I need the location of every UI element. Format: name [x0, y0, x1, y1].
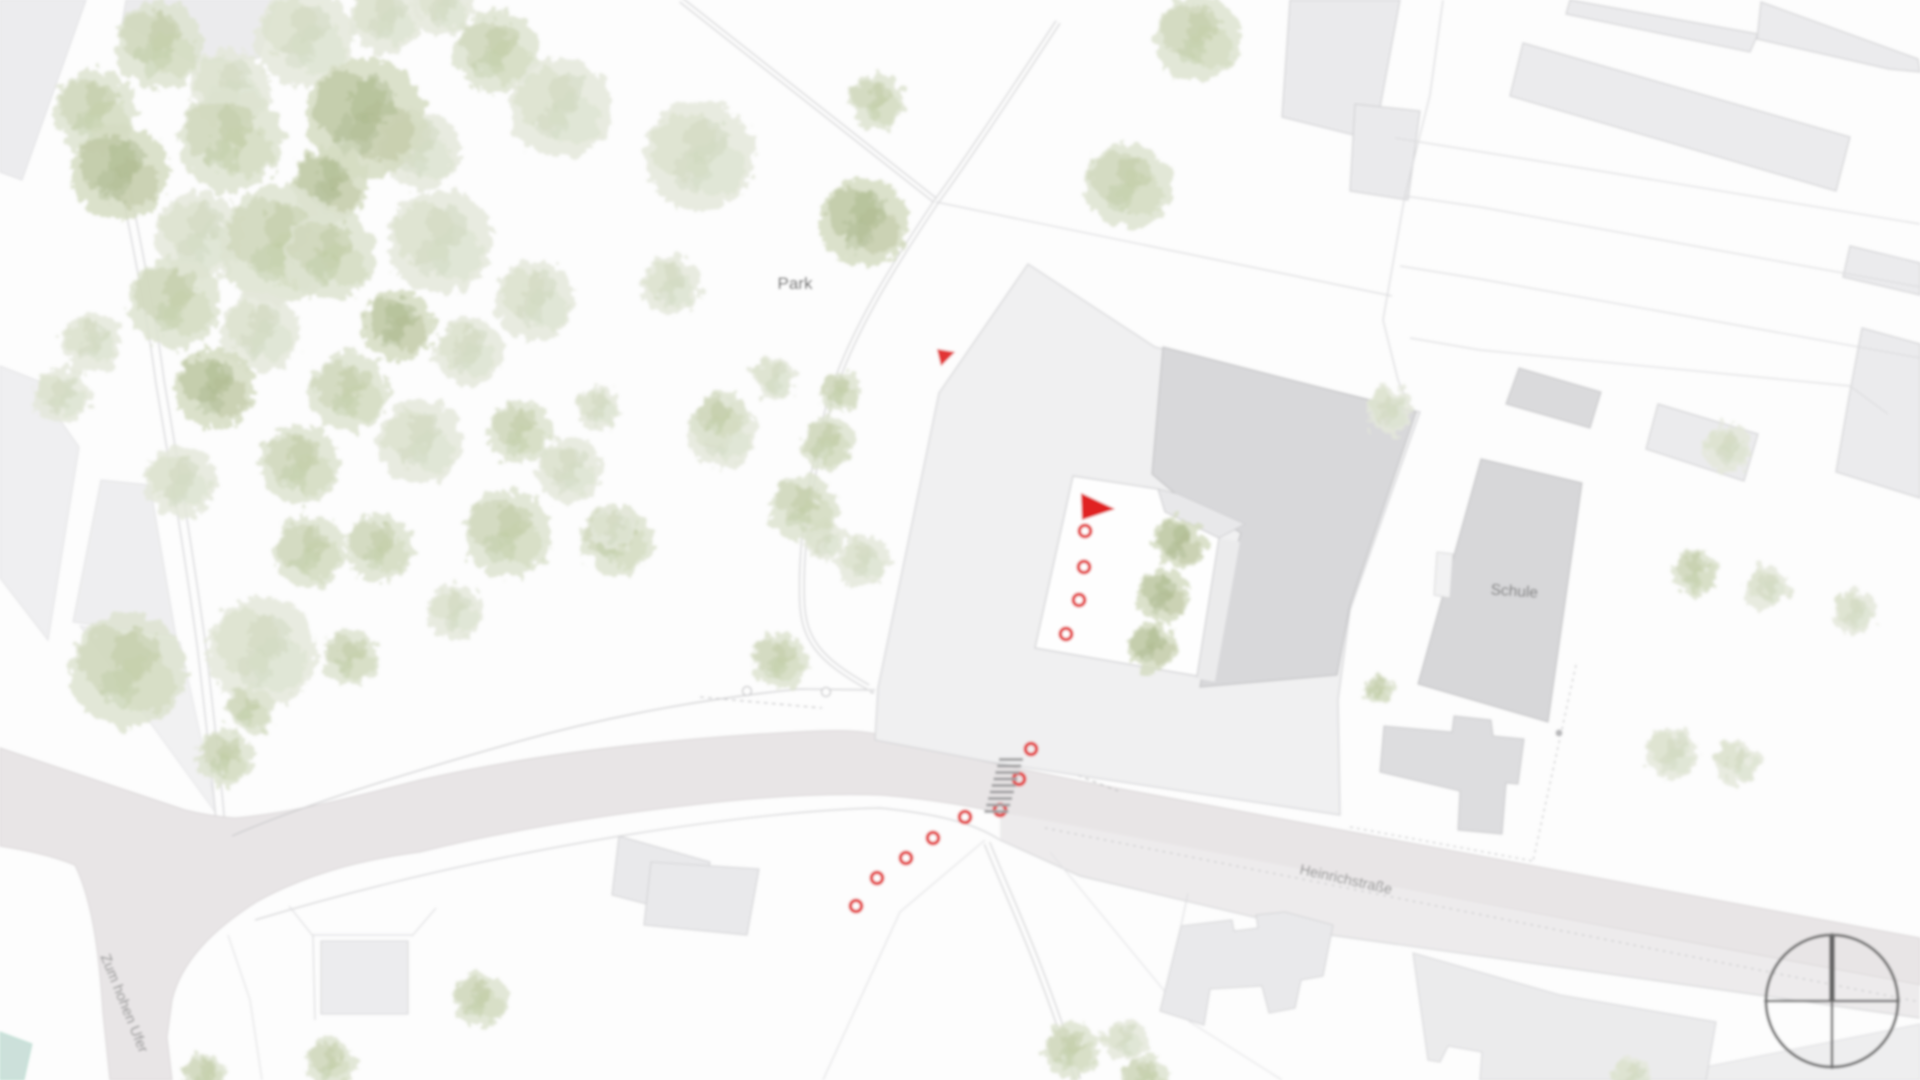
svg-text:Schule: Schule — [1490, 581, 1538, 601]
svg-text:Park: Park — [778, 274, 813, 293]
